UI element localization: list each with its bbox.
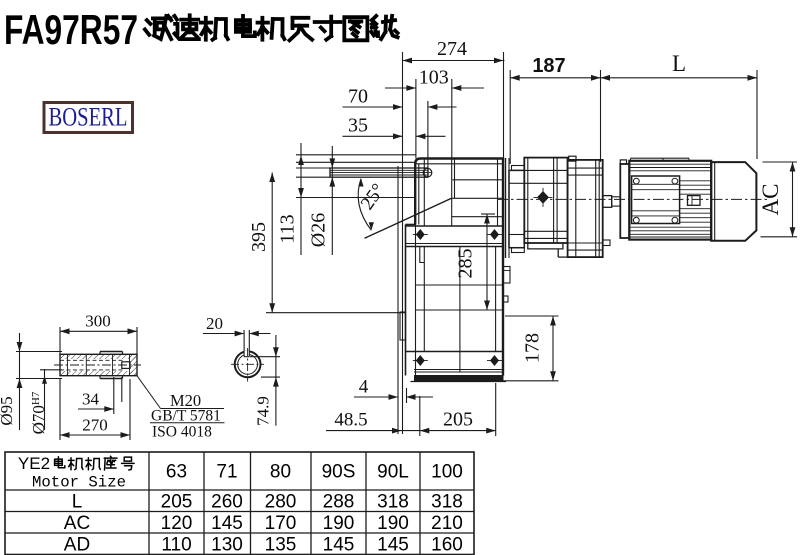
svg-text:260: 260 [211,491,243,512]
svg-text:135: 135 [265,534,297,555]
svg-text:20: 20 [206,314,223,333]
svg-text:178: 178 [522,333,544,363]
svg-text:190: 190 [377,513,409,534]
svg-text:395: 395 [248,222,270,252]
svg-text:80: 80 [270,462,291,483]
svg-text:71: 71 [216,462,237,483]
svg-text:L: L [672,51,686,76]
svg-text:280: 280 [265,491,297,512]
svg-text:YE2: YE2 [18,454,50,473]
svg-text:318: 318 [377,491,409,512]
svg-text:285: 285 [455,249,477,279]
svg-text:Motor Size: Motor Size [32,474,126,492]
svg-text:300: 300 [85,312,111,331]
svg-text:4: 4 [359,377,369,398]
svg-text:110: 110 [161,534,191,555]
svg-text:90S: 90S [322,462,356,483]
svg-text:145: 145 [377,534,409,555]
svg-text:63: 63 [166,462,187,483]
svg-text:34: 34 [82,390,100,409]
svg-text:70: 70 [348,86,368,108]
svg-text:AC: AC [758,184,783,216]
svg-text:Ø26: Ø26 [308,213,330,247]
svg-text:AC: AC [64,513,90,534]
svg-text:160: 160 [431,534,463,555]
svg-text:170: 170 [265,513,297,534]
svg-text:130: 130 [211,534,243,555]
svg-text:35: 35 [348,115,368,137]
svg-text:205: 205 [161,491,193,512]
svg-text:L: L [72,491,83,512]
svg-text:ISO 4018: ISO 4018 [152,424,212,441]
svg-text:318: 318 [431,491,463,512]
svg-text:48.5: 48.5 [334,410,367,431]
svg-text:BOSERL: BOSERL [49,103,128,132]
svg-text:274: 274 [437,38,467,60]
svg-text:187: 187 [532,55,565,77]
svg-text:210: 210 [431,513,463,534]
svg-text:74.9: 74.9 [254,396,273,426]
svg-text:145: 145 [323,534,355,555]
svg-text:288: 288 [323,491,355,512]
svg-text:270: 270 [82,416,108,435]
svg-text:120: 120 [161,513,193,534]
svg-text:145: 145 [211,513,243,534]
svg-text:Ø95: Ø95 [0,396,16,425]
svg-text:GB/T 5781: GB/T 5781 [151,408,221,425]
svg-text:190: 190 [323,513,355,534]
svg-text:FA97R57: FA97R57 [4,6,138,53]
svg-text:103: 103 [419,67,449,89]
svg-text:205: 205 [443,409,473,431]
svg-text:AD: AD [64,534,90,555]
svg-text:90L: 90L [377,462,409,483]
svg-text:100: 100 [431,462,463,483]
svg-text:113: 113 [277,214,299,243]
